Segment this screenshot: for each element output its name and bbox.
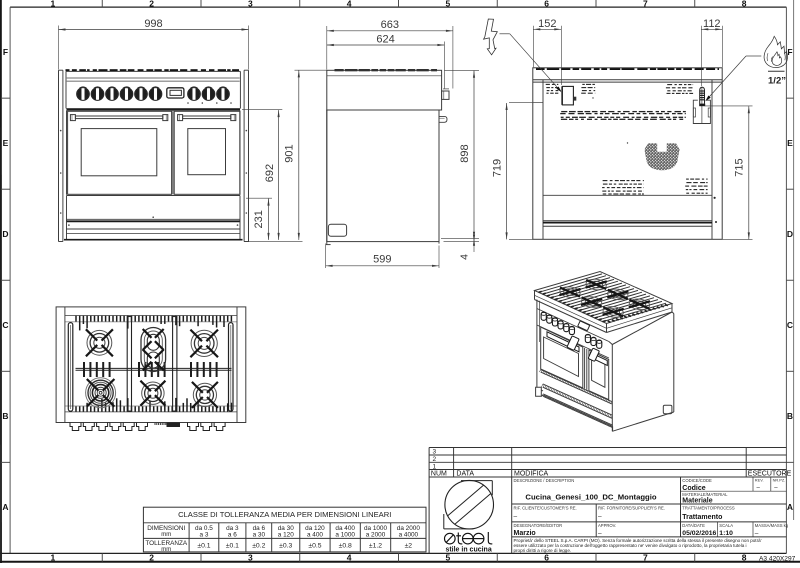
svg-text:4: 4: [347, 552, 352, 562]
svg-text:a 3: a 3: [200, 531, 209, 538]
svg-text:4: 4: [347, 0, 352, 8]
svg-text:998: 998: [144, 18, 162, 30]
svg-text:2: 2: [433, 456, 437, 463]
svg-text:152: 152: [538, 18, 556, 30]
svg-text:599: 599: [373, 253, 391, 265]
svg-text:Marzio: Marzio: [514, 530, 536, 537]
svg-text:2: 2: [149, 552, 154, 562]
svg-text:±0.5: ±0.5: [308, 543, 321, 550]
svg-text:F: F: [3, 47, 8, 57]
svg-text:B: B: [787, 411, 793, 421]
svg-text:MASSA/MASS kg: MASSA/MASS kg: [755, 523, 789, 528]
svg-text:D: D: [2, 229, 8, 239]
svg-text:APPROV.: APPROV.: [598, 523, 616, 528]
svg-text:DESCRIZIONE / DESCRIPTION: DESCRIZIONE / DESCRIPTION: [514, 478, 575, 483]
svg-text:a 400: a 400: [307, 531, 323, 538]
svg-text:a 4000: a 4000: [399, 531, 419, 538]
svg-text:±1.2: ±1.2: [369, 543, 382, 550]
svg-text:stile in cucina: stile in cucina: [445, 547, 491, 554]
svg-text:±0.1: ±0.1: [197, 543, 210, 550]
svg-text:RIF. FORNITORE/SUPPLIER’S RE.: RIF. FORNITORE/SUPPLIER’S RE.: [598, 505, 665, 510]
svg-text:1/2”: 1/2”: [768, 76, 786, 87]
svg-text:TOLLERANZA: TOLLERANZA: [145, 540, 188, 547]
svg-text:DATA: DATA: [456, 471, 474, 478]
svg-text:7: 7: [643, 0, 648, 8]
svg-text:1: 1: [51, 552, 56, 562]
svg-text:±0.3: ±0.3: [279, 543, 292, 550]
svg-text:E: E: [3, 138, 9, 148]
svg-text:NR.PZ.: NR.PZ.: [773, 477, 786, 482]
svg-text:4: 4: [459, 254, 471, 260]
svg-text:CODICE/CODE: CODICE/CODE: [682, 478, 712, 483]
svg-text:Materiale: Materiale: [682, 498, 712, 505]
svg-text:8: 8: [742, 0, 747, 8]
svg-text:a 1000: a 1000: [335, 531, 355, 538]
svg-text:RIF. CLIENTE/CUSTOMER’S RE.: RIF. CLIENTE/CUSTOMER’S RE.: [514, 505, 577, 510]
svg-text:3: 3: [248, 552, 253, 562]
svg-text:a 2000: a 2000: [366, 531, 386, 538]
svg-text:7: 7: [643, 552, 648, 562]
svg-text:A: A: [787, 502, 793, 512]
svg-text:C: C: [2, 320, 8, 330]
svg-text:112: 112: [703, 18, 721, 30]
svg-text:901: 901: [284, 144, 296, 162]
svg-text:1:10: 1:10: [719, 530, 733, 537]
svg-text:±0.1: ±0.1: [226, 543, 239, 550]
svg-text:05/02/2016: 05/02/2016: [682, 530, 716, 537]
svg-text:propri diritti a rigore di leg: propri diritti a rigore di legge.: [514, 548, 572, 553]
svg-text:1: 1: [51, 0, 56, 8]
svg-text:231: 231: [253, 210, 265, 228]
svg-text:a 30: a 30: [253, 531, 266, 538]
svg-text:±0.2: ±0.2: [252, 543, 265, 550]
svg-text:DESEGNATORE/EDITOR: DESEGNATORE/EDITOR: [514, 523, 563, 528]
svg-text:–: –: [598, 530, 602, 537]
svg-text:±2: ±2: [405, 543, 413, 550]
svg-text:a 6: a 6: [228, 531, 237, 538]
svg-text:REV.: REV.: [755, 477, 764, 482]
svg-text:3: 3: [248, 0, 253, 8]
svg-text:Trattamento: Trattamento: [682, 514, 722, 521]
svg-text:624: 624: [376, 34, 394, 46]
svg-text:A: A: [2, 502, 8, 512]
svg-text:1: 1: [433, 463, 437, 470]
svg-text:2: 2: [149, 0, 154, 8]
svg-text:±0.8: ±0.8: [339, 543, 352, 550]
svg-text:Codice: Codice: [682, 485, 705, 492]
svg-text:5: 5: [446, 0, 451, 8]
svg-text:5: 5: [446, 552, 451, 562]
svg-text:CLASSE DI TOLLERANZA MEDIA PER: CLASSE DI TOLLERANZA MEDIA PER DIMENSION…: [178, 510, 391, 519]
svg-text:6: 6: [544, 0, 549, 8]
svg-text:mm: mm: [161, 532, 171, 538]
svg-text:Cucina_Genesi_100_DC_Montaggio: Cucina_Genesi_100_DC_Montaggio: [525, 492, 656, 501]
svg-text:SCALA: SCALA: [719, 523, 733, 528]
svg-text:–: –: [755, 530, 759, 537]
svg-text:663: 663: [381, 19, 399, 31]
svg-text:–: –: [598, 513, 602, 520]
svg-text:DATA/DATE: DATA/DATE: [682, 523, 705, 528]
svg-text:F: F: [787, 47, 792, 57]
svg-text:719: 719: [491, 159, 503, 177]
svg-text:8: 8: [742, 552, 747, 562]
svg-text:715: 715: [734, 158, 746, 176]
svg-text:a 120: a 120: [278, 531, 294, 538]
svg-text:A3 420X297: A3 420X297: [759, 556, 796, 563]
svg-text:DIMENSIONI: DIMENSIONI: [147, 525, 185, 532]
svg-text:TRATTAMENTO/PROCESS: TRATTAMENTO/PROCESS: [682, 505, 735, 510]
svg-text:–: –: [514, 513, 518, 520]
svg-text:C: C: [787, 320, 793, 330]
svg-text:D: D: [787, 229, 793, 239]
svg-text:NUM: NUM: [431, 471, 447, 478]
svg-text:MODIFICA: MODIFICA: [514, 471, 549, 478]
svg-text:MATERIALE/MATERIAL: MATERIALE/MATERIAL: [682, 492, 728, 497]
svg-text:B: B: [2, 411, 8, 421]
svg-text:692: 692: [264, 164, 276, 182]
svg-text:3: 3: [433, 449, 437, 456]
svg-text:6: 6: [544, 552, 549, 562]
svg-text:mm: mm: [161, 547, 171, 553]
svg-text:898: 898: [459, 144, 471, 162]
svg-text:E: E: [787, 138, 793, 148]
